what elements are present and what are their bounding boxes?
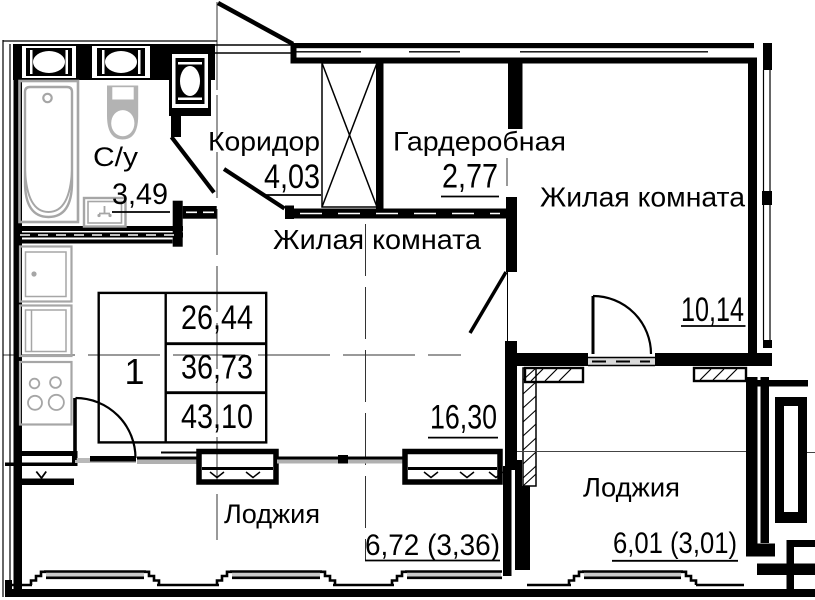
svg-text:36,73: 36,73: [181, 349, 253, 387]
svg-text:Лоджия: Лоджия: [583, 473, 680, 503]
svg-text:43,10: 43,10: [181, 398, 253, 436]
svg-text:26,44: 26,44: [181, 299, 253, 337]
svg-text:6,72 (3,36): 6,72 (3,36): [365, 529, 500, 562]
svg-text:3,49: 3,49: [112, 178, 168, 211]
svg-text:Жилая комната: Жилая комната: [273, 224, 482, 255]
svg-text:6,01 (3,01): 6,01 (3,01): [613, 527, 737, 560]
svg-text:Гардеробная: Гардеробная: [393, 127, 566, 157]
svg-text:1: 1: [124, 351, 144, 392]
svg-text:16,30: 16,30: [430, 399, 497, 437]
svg-text:4,03: 4,03: [264, 158, 320, 196]
svg-text:2,77: 2,77: [442, 158, 498, 196]
svg-text:С/у: С/у: [93, 142, 139, 172]
svg-text:Жилая комната: Жилая комната: [540, 182, 746, 213]
svg-text:Лоджия: Лоджия: [224, 499, 320, 529]
svg-text:Коридор: Коридор: [208, 127, 320, 157]
svg-text:10,14: 10,14: [681, 291, 744, 329]
